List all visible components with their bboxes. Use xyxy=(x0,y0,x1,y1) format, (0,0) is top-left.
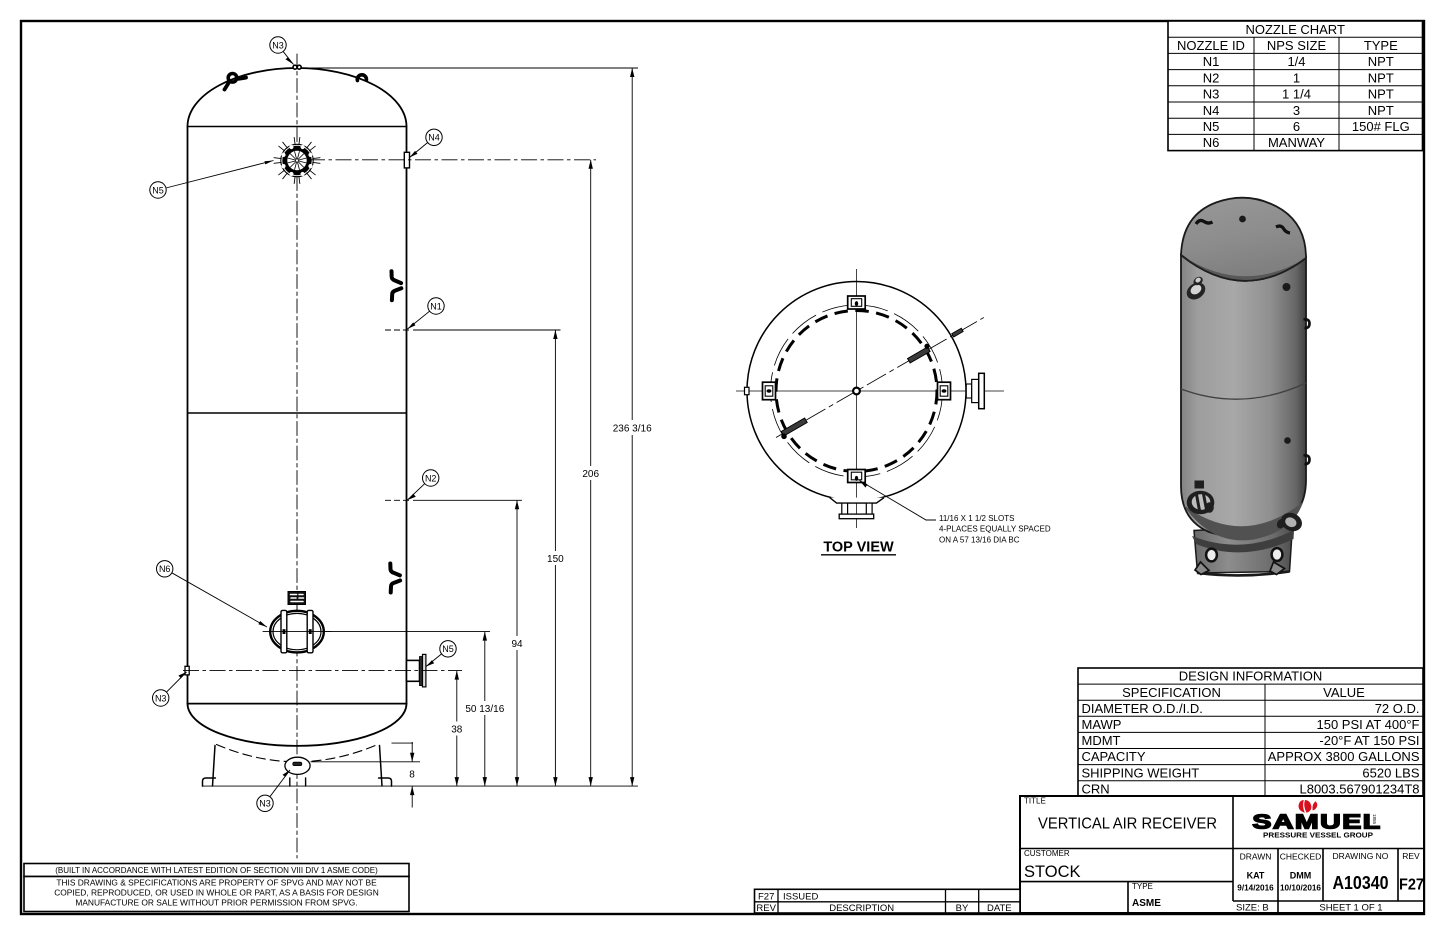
svg-text:TITLE: TITLE xyxy=(1024,797,1046,806)
svg-text:F27: F27 xyxy=(758,891,774,902)
svg-text:N5: N5 xyxy=(1203,119,1220,134)
svg-text:A10340: A10340 xyxy=(1333,872,1389,893)
svg-text:150: 150 xyxy=(547,554,564,565)
svg-text:1/4: 1/4 xyxy=(1287,54,1305,69)
svg-text:VALUE: VALUE xyxy=(1323,685,1365,700)
svg-text:NOZZLE ID: NOZZLE ID xyxy=(1177,38,1245,53)
svg-text:DESCRIPTION: DESCRIPTION xyxy=(829,903,894,914)
svg-text:SIZE: B: SIZE: B xyxy=(1236,903,1269,914)
svg-text:THIS DRAWING & SPECIFICATIONS: THIS DRAWING & SPECIFICATIONS ARE PROPER… xyxy=(56,878,377,888)
svg-text:CHECKED: CHECKED xyxy=(1280,852,1322,862)
svg-text:ISSUED: ISSUED xyxy=(783,891,819,902)
svg-text:6520 LBS: 6520 LBS xyxy=(1362,765,1419,780)
svg-text:CRN: CRN xyxy=(1082,781,1110,796)
svg-text:MDMT: MDMT xyxy=(1082,733,1121,748)
svg-text:206: 206 xyxy=(582,469,599,480)
svg-text:TYPE: TYPE xyxy=(1364,38,1398,53)
svg-text:N1: N1 xyxy=(1203,54,1220,69)
svg-text:N1: N1 xyxy=(430,301,442,311)
svg-text:150 PSI AT 400°F: 150 PSI AT 400°F xyxy=(1316,717,1419,732)
svg-text:MAWP: MAWP xyxy=(1082,717,1122,732)
svg-text:150# FLG: 150# FLG xyxy=(1352,119,1410,134)
svg-text:COPIED, REPRODUCED, OR USED IN: COPIED, REPRODUCED, OR USED IN WHOLE OR … xyxy=(54,888,379,898)
svg-text:DIAMETER O.D./I.D.: DIAMETER O.D./I.D. xyxy=(1082,701,1203,716)
svg-text:SHIPPING WEIGHT: SHIPPING WEIGHT xyxy=(1082,765,1200,780)
svg-text:38: 38 xyxy=(451,725,463,736)
svg-text:BY: BY xyxy=(956,903,969,914)
svg-text:ASME: ASME xyxy=(1132,898,1161,909)
svg-text:PRESSURE VESSEL GROUP: PRESSURE VESSEL GROUP xyxy=(1263,831,1373,840)
svg-text:NPT: NPT xyxy=(1368,54,1394,69)
svg-text:KAT: KAT xyxy=(1247,871,1265,881)
svg-text:NPT: NPT xyxy=(1368,103,1394,118)
svg-text:N5: N5 xyxy=(442,644,454,654)
svg-text:N2: N2 xyxy=(425,473,437,483)
svg-text:1: 1 xyxy=(1293,70,1300,85)
svg-text:11/16 X 1 1/2 SLOTS: 11/16 X 1 1/2 SLOTS xyxy=(939,514,1014,523)
svg-text:TYPE: TYPE xyxy=(1132,882,1153,891)
svg-text:DMM: DMM xyxy=(1290,871,1312,881)
svg-text:236 3/16: 236 3/16 xyxy=(613,424,652,435)
svg-text:NPT: NPT xyxy=(1368,87,1394,102)
svg-text:NPT: NPT xyxy=(1368,70,1394,85)
svg-text:N3: N3 xyxy=(259,799,271,809)
svg-text:REV: REV xyxy=(756,903,776,914)
svg-text:N4: N4 xyxy=(428,133,440,143)
svg-text:N6: N6 xyxy=(1203,135,1220,150)
svg-text:50 13/16: 50 13/16 xyxy=(465,704,504,715)
svg-text:3: 3 xyxy=(1293,103,1300,118)
svg-text:N3: N3 xyxy=(272,40,284,50)
svg-text:1 1/4: 1 1/4 xyxy=(1282,87,1311,102)
svg-text:-20°F AT 150 PSI: -20°F AT 150 PSI xyxy=(1319,733,1419,748)
svg-text:N4: N4 xyxy=(1203,103,1220,118)
svg-text:ON A 57 13/16 DIA BC: ON A 57 13/16 DIA BC xyxy=(939,535,1020,544)
svg-text:10/10/2016: 10/10/2016 xyxy=(1280,884,1321,893)
svg-text:4-PLACES EQUALLY SPACED: 4-PLACES EQUALLY SPACED xyxy=(939,525,1051,534)
svg-text:N6: N6 xyxy=(159,564,171,574)
svg-text:L8003.567901234T8: L8003.567901234T8 xyxy=(1299,781,1419,796)
svg-text:94: 94 xyxy=(511,639,523,650)
svg-text:REV: REV xyxy=(1402,851,1420,861)
svg-text:NPS SIZE: NPS SIZE xyxy=(1267,38,1327,53)
svg-text:NOZZLE CHART: NOZZLE CHART xyxy=(1245,22,1344,37)
svg-text:SHEET 1 OF 1: SHEET 1 OF 1 xyxy=(1319,903,1382,914)
svg-text:N2: N2 xyxy=(1203,70,1220,85)
svg-text:72 O.D.: 72 O.D. xyxy=(1375,701,1420,716)
svg-text:APPROX 3800 GALLONS: APPROX 3800 GALLONS xyxy=(1268,749,1420,764)
svg-text:8: 8 xyxy=(409,770,415,781)
svg-text:VERTICAL AIR RECEIVER: VERTICAL AIR RECEIVER xyxy=(1038,816,1217,833)
svg-text:N3: N3 xyxy=(155,693,167,703)
svg-text:STOCK: STOCK xyxy=(1024,863,1081,881)
svg-text:DRAWN: DRAWN xyxy=(1240,852,1272,862)
svg-text:N5: N5 xyxy=(152,185,164,195)
svg-text:DESIGN INFORMATION: DESIGN INFORMATION xyxy=(1179,669,1322,684)
svg-text:MANWAY: MANWAY xyxy=(1268,135,1325,150)
svg-text:DRAWING NO: DRAWING NO xyxy=(1333,851,1389,861)
svg-text:MANUFACTURE OR SALE WITHOUT PR: MANUFACTURE OR SALE WITHOUT PRIOR PERMIS… xyxy=(75,898,357,908)
svg-text:1855: 1855 xyxy=(1372,814,1377,825)
svg-text:TOP VIEW: TOP VIEW xyxy=(823,540,894,556)
svg-text:CUSTOMER: CUSTOMER xyxy=(1024,849,1070,858)
svg-text:DATE: DATE xyxy=(987,903,1012,914)
svg-text:6: 6 xyxy=(1293,119,1300,134)
svg-text:(BUILT IN ACCORDANCE WITH LATE: (BUILT IN ACCORDANCE WITH LATEST EDITION… xyxy=(55,866,378,875)
svg-text:SPECIFICATION: SPECIFICATION xyxy=(1122,685,1221,700)
svg-text:N3: N3 xyxy=(1203,87,1220,102)
svg-text:9/14/2016: 9/14/2016 xyxy=(1237,884,1274,893)
svg-text:CAPACITY: CAPACITY xyxy=(1082,749,1146,764)
svg-text:F27: F27 xyxy=(1399,877,1424,894)
